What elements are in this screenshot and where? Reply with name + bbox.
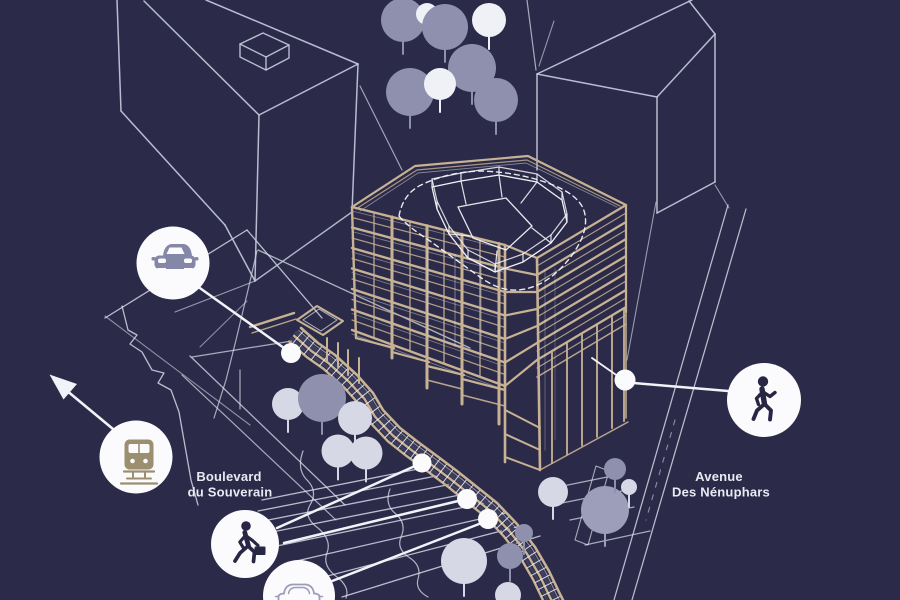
svg-text:Avenue: Avenue (695, 469, 743, 484)
svg-text:Boulevard: Boulevard (196, 469, 261, 484)
svg-text:Des Nénuphars: Des Nénuphars (672, 485, 770, 500)
svg-text:du Souverain: du Souverain (188, 485, 273, 500)
